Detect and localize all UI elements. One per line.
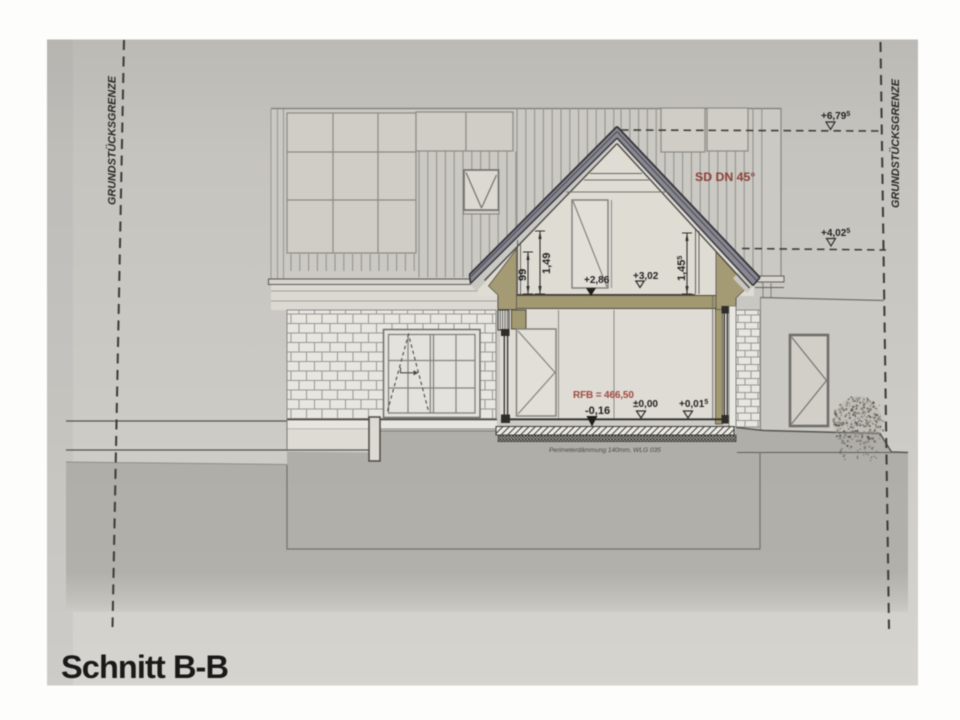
svg-text:+2,86: +2,86 xyxy=(584,275,610,286)
svg-text:1,49: 1,49 xyxy=(541,253,553,274)
svg-text:GRUNDSTÜCKSGRENZE: GRUNDSTÜCKSGRENZE xyxy=(106,75,119,205)
svg-text:+0,015: +0,015 xyxy=(679,399,708,410)
svg-text:GRUNDSTÜCKSGRENZE: GRUNDSTÜCKSGRENZE xyxy=(889,78,902,208)
svg-text:Perimeterdämmung 140mm, WLG 03: Perimeterdämmung 140mm, WLG 035 xyxy=(549,447,661,454)
svg-text:+4,025: +4,025 xyxy=(821,228,850,239)
svg-text:+3,02: +3,02 xyxy=(633,271,659,282)
svg-text:99: 99 xyxy=(517,269,529,281)
svg-text:+6,795: +6,795 xyxy=(821,111,850,122)
svg-text:SD DN 45°: SD DN 45° xyxy=(695,170,755,184)
svg-text:-0,16: -0,16 xyxy=(585,405,610,417)
svg-text:RFB = 466,50: RFB = 466,50 xyxy=(573,390,634,401)
svg-text:Schnitt B-B: Schnitt B-B xyxy=(61,649,228,685)
svg-text:±0,00: ±0,00 xyxy=(633,399,658,410)
